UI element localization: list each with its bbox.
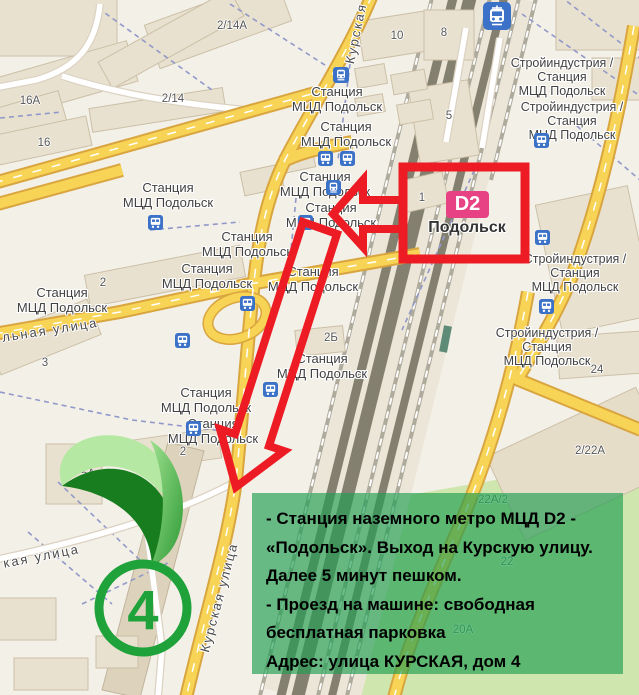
map-canvas[interactable]: СтанцияМЦД Подольск СтанцияМЦД Подольск … <box>0 0 639 695</box>
note-line: бесплатная парковка <box>266 619 623 648</box>
arrow-to-building <box>220 222 337 487</box>
marker-number: 4 <box>127 578 158 643</box>
directions-note: - Станция наземного метро МЦД D2 - «Подо… <box>252 493 623 674</box>
note-line: - Станция наземного метро МЦД D2 - <box>266 505 623 534</box>
note-line: Адрес: улица КУРСКАЯ, дом 4 <box>266 648 623 677</box>
note-line: «Подольск». Выход на Курскую улицу. <box>266 534 623 563</box>
note-line: Далее 5 минут пешком. <box>266 562 623 591</box>
logo-swoosh <box>60 435 183 566</box>
arrow-to-station <box>333 180 403 247</box>
d2-highlight-rectangle <box>403 167 525 259</box>
red-annotations <box>220 167 525 487</box>
note-line: - Проезд на машине: свободная <box>266 591 623 620</box>
